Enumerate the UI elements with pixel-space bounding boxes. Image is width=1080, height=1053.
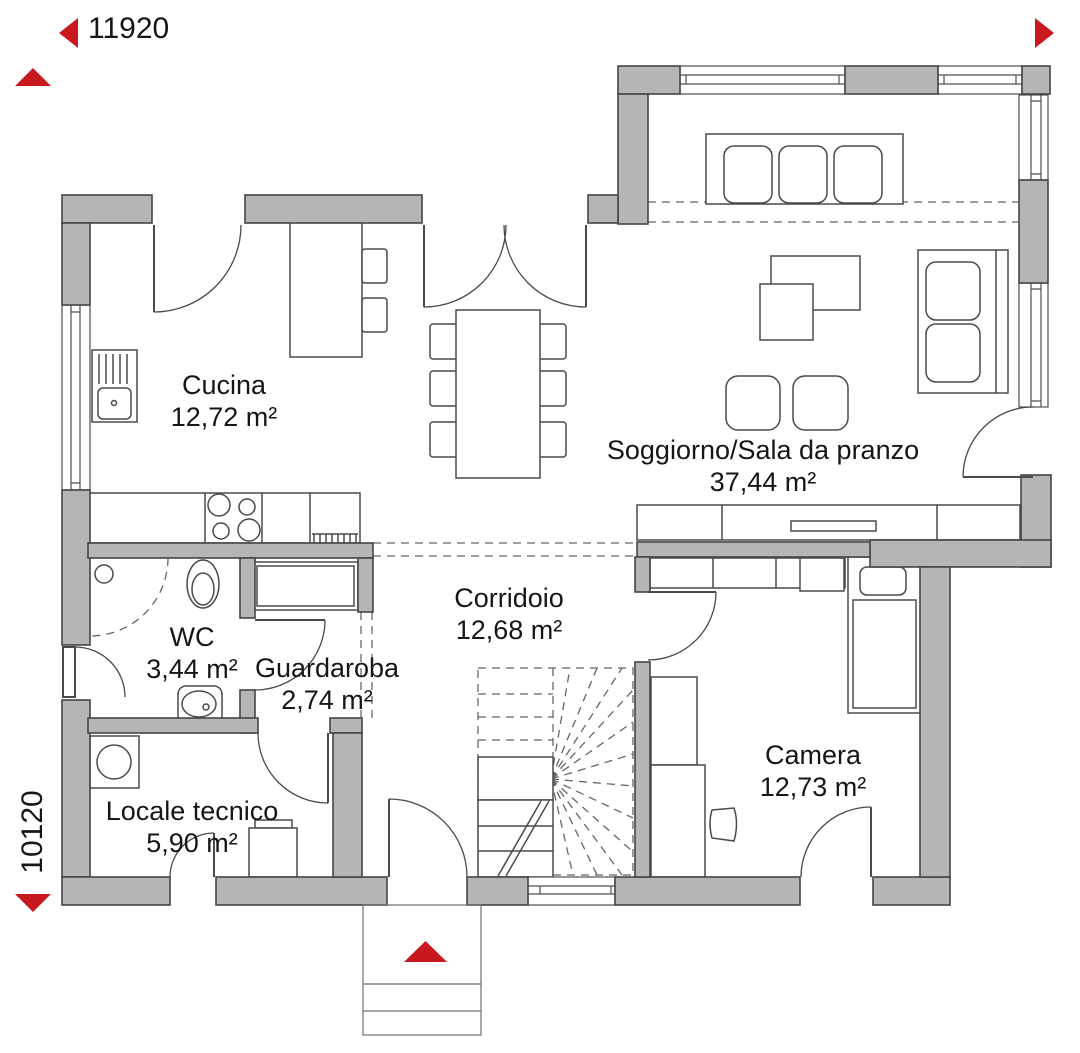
room-area: 12,72 m² [171,401,278,433]
room-name: Camera [760,739,867,771]
room-label-camera: Camera 12,73 m² [760,739,867,803]
dim-arrow-up-icon [15,68,51,86]
window-top-2 [938,66,1022,94]
floor-plan: 11920 10120 Cucina 12,72 m² Soggiorno/Sa… [0,0,1080,1053]
room-area: 5,90 m² [106,827,279,859]
room-label-guardaroba: Guardaroba 2,74 m² [255,652,399,716]
door-tech-interior [258,733,328,803]
room-name: Locale tecnico [106,795,279,827]
staircase [478,668,633,877]
door-terrace-camera [801,807,871,877]
room-area: 37,44 m² [607,466,919,498]
wardrobe-camera [650,558,845,591]
kitchen-stove-counter [88,493,360,543]
window-right-1 [1019,95,1048,180]
room-label-locale-tecnico: Locale tecnico 5,90 m² [106,795,279,859]
dim-horizontal-label: 11920 [88,12,169,46]
room-area: 12,73 m² [760,771,867,803]
room-name: WC [146,621,238,653]
sofa-large [706,134,903,204]
sofa-small [918,250,1008,393]
window-right-2 [1019,283,1048,407]
window-top-1 [680,66,845,94]
door-wc-exterior [63,647,125,697]
toilet [187,560,219,608]
door-front-entrance [389,799,467,877]
door-camera [648,592,716,660]
room-label-corridoio: Corridoio 12,68 m² [454,582,564,646]
room-label-cucina: Cucina 12,72 m² [171,369,278,433]
kitchen-stools [362,249,387,332]
desk-chair [710,808,737,841]
window-left [62,305,90,490]
kitchen-sink-unit [92,350,137,422]
kitchen-island [290,222,362,357]
room-label-wc: WC 3,44 m² [146,621,238,685]
desk [651,677,705,877]
floor-plan-drawing [0,0,1080,1053]
door-french-dining [424,225,586,307]
poufs [726,376,848,430]
room-area: 2,74 m² [255,684,399,716]
dining-table [456,310,540,478]
dim-arrow-right-icon [1035,18,1054,48]
door-kitchen [154,225,241,312]
bed [848,557,921,713]
dim-vertical-label: 10120 [16,790,50,873]
window-bottom [528,877,615,905]
tv-sideboard [637,505,1020,540]
room-name: Cucina [171,369,278,401]
dim-arrow-left-icon [59,18,78,48]
room-name: Soggiorno/Sala da pranzo [607,434,919,466]
room-area: 3,44 m² [146,653,238,685]
room-area: 12,68 m² [454,614,564,646]
dim-arrow-down-icon [15,894,51,912]
washing-machine [90,736,139,788]
room-name: Corridoio [454,582,564,614]
furniture [88,134,1020,877]
coffee-tables [760,256,860,340]
room-name: Guardaroba [255,652,399,684]
closet-guardaroba [253,562,358,610]
room-label-soggiorno: Soggiorno/Sala da pranzo 37,44 m² [607,434,919,498]
door-terrace-living [963,407,1033,477]
entrance-porch [363,905,481,1035]
entrance-arrow-icon [404,941,447,962]
